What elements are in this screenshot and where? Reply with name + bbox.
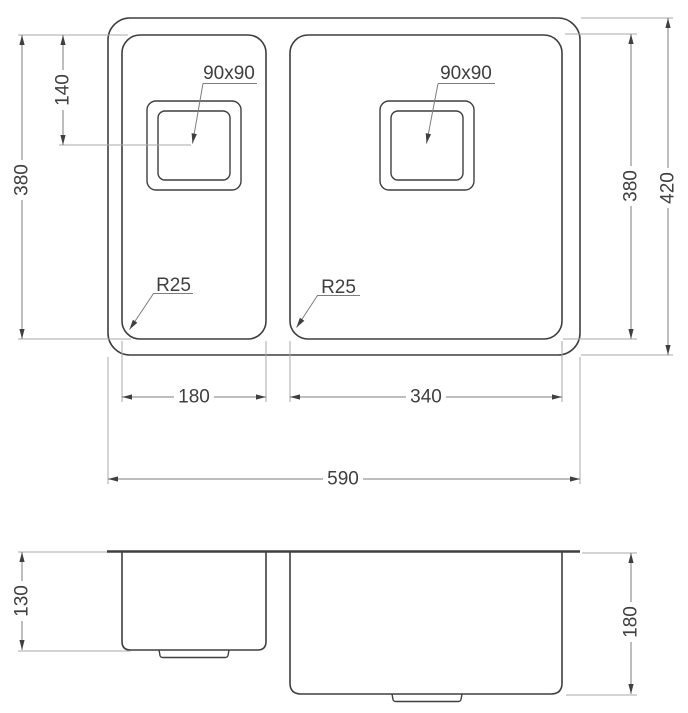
left-drain-bump [159, 650, 229, 658]
right-drain-outline [391, 111, 463, 180]
arrowhead-down [665, 345, 670, 355]
leader-arrowhead [190, 133, 197, 144]
arrowhead-right [552, 394, 562, 399]
dimension-drain-offset-140: 140 [53, 35, 74, 145]
right-bowl-profile [290, 552, 562, 694]
dim-label-bowl-depth-right: 380 [621, 170, 642, 202]
leader-right-corner-radius: R25 [294, 277, 360, 329]
sink-technical-drawing: 140 380 380 420 180 [0, 0, 688, 713]
dim-label-right-bowl-width: 340 [410, 387, 442, 408]
leader-left-drain: 90x90 [190, 63, 257, 144]
technical-drawing-page: 140 380 380 420 180 [0, 0, 688, 713]
leader-arrowhead [127, 320, 137, 331]
dim-label-drain-offset: 140 [53, 74, 74, 106]
front-view [107, 552, 580, 702]
arrowhead-up [628, 553, 633, 563]
arrowhead-down [19, 329, 24, 339]
arrowhead-up [665, 18, 670, 28]
dimension-bowl-depth-right-380: 380 [621, 34, 642, 339]
left-corner-radius-label: R25 [156, 275, 191, 296]
leader-right-drain: 90x90 [424, 63, 495, 144]
top-view [108, 18, 580, 355]
left-bowl-profile [122, 552, 266, 650]
dimension-right-bowl-width-340: 340 [290, 387, 562, 408]
dim-label-overall-depth: 420 [658, 172, 679, 204]
dimension-left-bowl-depth-130: 130 [12, 552, 33, 650]
leader-arrowhead [294, 318, 304, 329]
arrowhead-left [290, 394, 300, 399]
leader-left-corner-radius: R25 [127, 275, 193, 331]
dim-label-overall-width: 590 [327, 469, 359, 490]
arrowhead-down [628, 684, 633, 694]
arrowhead-left [122, 394, 132, 399]
leader-arrowhead [424, 133, 431, 144]
arrowhead-down [60, 135, 65, 145]
dim-label-bowl-depth-left: 380 [12, 164, 33, 196]
dim-label-left-bowl-depth: 130 [12, 585, 33, 617]
dimension-overall-width-590: 590 [108, 469, 580, 490]
arrowhead-left [108, 476, 118, 481]
arrowhead-down [628, 329, 633, 339]
outer-rim-outline [108, 18, 580, 355]
arrowhead-right [570, 476, 580, 481]
arrowhead-up [628, 34, 633, 44]
dimension-left-bowl-width-180: 180 [122, 387, 266, 408]
left-drain-size-label: 90x90 [203, 63, 255, 84]
extension-lines-front-view [18, 552, 637, 695]
dim-label-left-bowl-width: 180 [178, 387, 210, 408]
arrowhead-down [19, 640, 24, 650]
extension-lines-top-view [18, 18, 673, 484]
right-drain-flange-outline [380, 101, 474, 190]
right-corner-radius-label: R25 [321, 277, 356, 298]
dim-label-right-bowl-depth: 180 [621, 606, 642, 638]
dimension-overall-depth-420: 420 [658, 18, 679, 355]
dimension-bowl-depth-left-380: 380 [12, 35, 33, 339]
dimension-right-bowl-depth-180: 180 [621, 553, 642, 694]
right-drain-size-label: 90x90 [440, 63, 492, 84]
arrowhead-up [19, 35, 24, 45]
arrowhead-right [256, 394, 266, 399]
arrowhead-up [60, 35, 65, 45]
right-drain-bump [392, 694, 462, 702]
arrowhead-up [19, 552, 24, 562]
